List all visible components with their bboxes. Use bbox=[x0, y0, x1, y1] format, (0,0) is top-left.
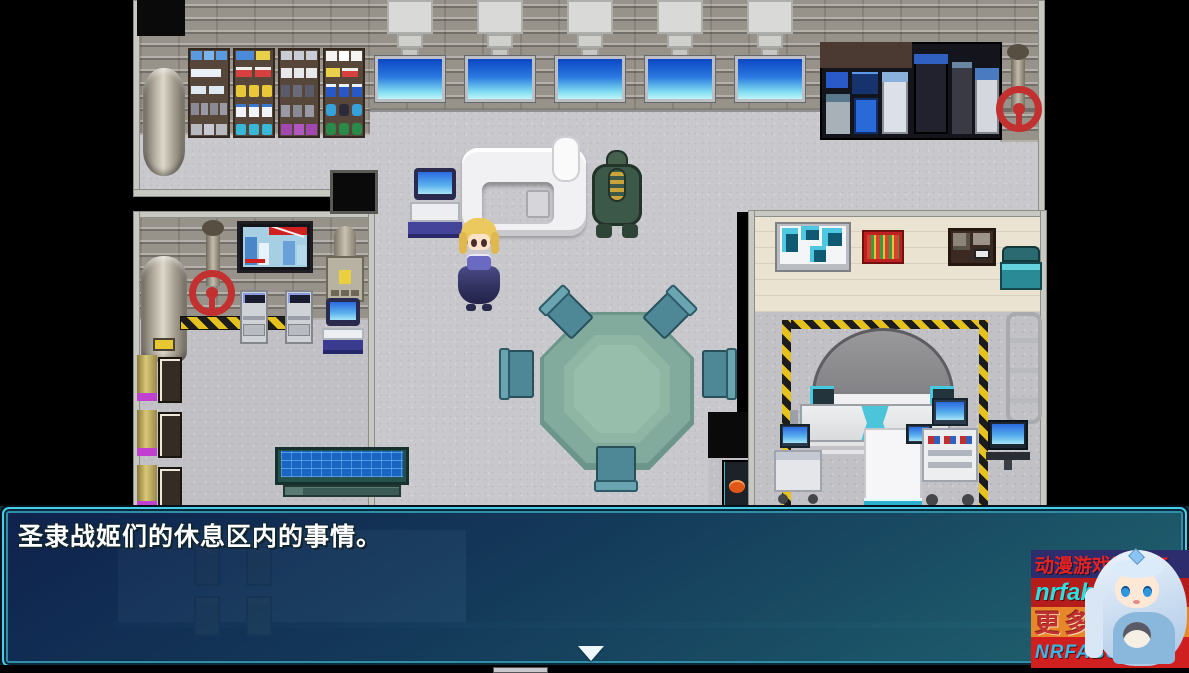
picture-label bbox=[974, 249, 990, 259]
xray-film bbox=[810, 246, 826, 262]
shelf-item bbox=[339, 123, 349, 135]
machine-panel bbox=[158, 357, 182, 403]
counter-panel bbox=[552, 136, 580, 182]
wall-picture bbox=[948, 228, 996, 266]
shelf-item bbox=[255, 67, 271, 77]
shelf-item bbox=[293, 85, 302, 97]
shelf-row bbox=[281, 51, 317, 60]
machine-cylinder bbox=[137, 410, 157, 456]
cart-base bbox=[408, 222, 462, 238]
desk-monitor bbox=[326, 298, 360, 326]
shelf-item bbox=[294, 68, 305, 78]
cart-monitor bbox=[932, 398, 968, 426]
shelf-item bbox=[339, 84, 349, 97]
monitor-stand bbox=[986, 420, 1030, 470]
shelf-item bbox=[281, 105, 290, 117]
machine-button bbox=[351, 290, 359, 296]
wall-vent bbox=[747, 0, 793, 34]
shelf-row bbox=[191, 86, 227, 94]
shelf-item bbox=[256, 51, 270, 60]
shelf-item bbox=[209, 86, 224, 94]
holo-frame bbox=[275, 447, 409, 485]
shelf-item bbox=[216, 124, 227, 135]
watermark-mascot bbox=[1083, 548, 1189, 668]
shelf-item bbox=[262, 104, 272, 117]
wall-monitor bbox=[735, 56, 805, 102]
valve-wheel bbox=[189, 270, 235, 316]
robot-foot bbox=[596, 224, 612, 238]
terminal-screen bbox=[288, 293, 310, 303]
machinery-cabinet bbox=[975, 68, 999, 134]
shelf-item bbox=[249, 85, 259, 97]
cart-shelf bbox=[928, 462, 972, 468]
machine-button bbox=[341, 290, 349, 296]
shelf-item bbox=[352, 104, 362, 116]
stand-shelf bbox=[986, 452, 1030, 460]
shelf-row bbox=[281, 105, 317, 117]
doorway-machineroom bbox=[330, 170, 378, 214]
shelf-row bbox=[281, 124, 317, 135]
red-poster bbox=[862, 230, 904, 264]
shelf-item bbox=[249, 124, 259, 135]
shelf-item bbox=[306, 124, 317, 135]
shelf-row bbox=[191, 69, 227, 77]
terminal-slot bbox=[288, 316, 310, 320]
shelf-item bbox=[249, 104, 259, 117]
machinery-lockers bbox=[820, 42, 1002, 140]
xray-viewer bbox=[775, 222, 851, 272]
wall-machine bbox=[137, 355, 183, 405]
machinery-screen bbox=[826, 72, 848, 88]
machine-label bbox=[339, 270, 351, 284]
medical-cart-right bbox=[916, 398, 982, 510]
green-robot bbox=[592, 150, 642, 240]
machinery-screen bbox=[854, 98, 878, 134]
cart-monitor-screen bbox=[783, 427, 807, 443]
robot-core bbox=[610, 170, 624, 200]
machinery-locker bbox=[914, 54, 948, 134]
cart-body bbox=[774, 450, 822, 492]
robot-foot bbox=[622, 224, 638, 238]
shelf-item bbox=[306, 51, 317, 60]
chair-back bbox=[499, 348, 510, 400]
valve-wheel bbox=[996, 86, 1042, 132]
store-shelf-2 bbox=[233, 48, 275, 138]
chair-back bbox=[726, 348, 737, 400]
terminal-panel bbox=[243, 324, 265, 336]
stretcher-bar bbox=[1010, 368, 1038, 373]
xray-board bbox=[780, 226, 846, 264]
boiler-window bbox=[153, 338, 175, 351]
shelf-item bbox=[294, 51, 305, 60]
player-hair-lock bbox=[491, 232, 499, 254]
holo-base bbox=[283, 485, 401, 497]
teal-machine-top bbox=[1002, 246, 1040, 262]
shelf-item bbox=[326, 84, 336, 97]
shelf-row bbox=[281, 68, 317, 78]
shelf-item bbox=[293, 105, 302, 117]
desk-keyboard bbox=[322, 328, 364, 340]
shelf-item bbox=[339, 51, 350, 61]
shelf-item bbox=[306, 68, 317, 78]
shelf-item bbox=[210, 103, 218, 115]
shelf-row bbox=[236, 67, 272, 77]
cart-monitor bbox=[414, 168, 456, 200]
shelf-item bbox=[352, 123, 362, 135]
store-shelf-4 bbox=[323, 48, 365, 138]
machine-button bbox=[331, 290, 339, 296]
shelf-item bbox=[326, 104, 336, 116]
scanner-monitor bbox=[810, 386, 834, 406]
tv-building bbox=[297, 245, 306, 265]
poster-pattern bbox=[867, 235, 899, 259]
player-skirt bbox=[458, 266, 500, 304]
cart-modules bbox=[928, 436, 972, 444]
cart-monitor-screen bbox=[418, 172, 452, 194]
stand-monitor-screen bbox=[992, 424, 1024, 444]
holo-table bbox=[275, 447, 409, 497]
dialogue-text: 圣隶战姬们的休息区内的事情。 bbox=[18, 517, 382, 553]
machinery-screen bbox=[852, 72, 878, 94]
table-center bbox=[574, 345, 660, 433]
stretcher-bar bbox=[1010, 398, 1038, 403]
dialogue-box[interactable]: 圣隶战姬们的休息区内的事情。 bbox=[2, 507, 1187, 667]
machine-cylinder bbox=[137, 465, 157, 509]
shelf-row bbox=[281, 85, 317, 97]
shelf-item bbox=[352, 84, 362, 97]
player-eye bbox=[481, 239, 487, 247]
shelf-item bbox=[191, 103, 199, 115]
valve-pipe-cap bbox=[1007, 44, 1029, 60]
wall-vent bbox=[567, 0, 613, 34]
terminal-machine bbox=[285, 290, 313, 344]
shelf-row bbox=[191, 124, 227, 135]
shelf-item bbox=[326, 51, 337, 61]
tv-picture bbox=[243, 227, 307, 267]
store-shelf-3 bbox=[278, 48, 320, 138]
machinery-panel bbox=[820, 42, 912, 68]
wall-monitor bbox=[555, 56, 625, 102]
shelf-item bbox=[342, 68, 358, 77]
wall-monitor bbox=[375, 56, 445, 102]
cart-keyboard bbox=[410, 202, 460, 222]
cart-monitor bbox=[780, 424, 810, 448]
shelf-item bbox=[305, 85, 314, 97]
shelf-row bbox=[236, 85, 272, 97]
mascot-plush bbox=[1123, 622, 1151, 648]
stand-monitor bbox=[988, 420, 1028, 450]
wall-vent bbox=[657, 0, 703, 34]
counter-box bbox=[526, 190, 550, 218]
machine-cylinder bbox=[137, 355, 157, 401]
shelf-item bbox=[326, 68, 340, 77]
xray-film bbox=[801, 226, 819, 240]
shelf-item bbox=[191, 124, 202, 135]
terminal-panel bbox=[288, 324, 310, 336]
stretcher-bar bbox=[1010, 338, 1038, 343]
shelf-row bbox=[326, 51, 362, 61]
shelf-item bbox=[262, 85, 272, 97]
shelf-row bbox=[326, 84, 362, 97]
terminal-slot bbox=[243, 316, 265, 320]
shelf-item bbox=[236, 51, 254, 60]
shelf-item bbox=[191, 86, 206, 94]
bottom-bar bbox=[0, 665, 1189, 673]
metal-tank bbox=[143, 68, 185, 176]
player-character bbox=[456, 216, 502, 312]
mascot-eye bbox=[1143, 586, 1152, 597]
teal-machine bbox=[1000, 246, 1042, 292]
medical-cart-left bbox=[772, 410, 826, 510]
shelf-item bbox=[326, 123, 336, 135]
xray-film bbox=[822, 228, 842, 246]
machine-panel bbox=[158, 467, 182, 511]
shelf-row bbox=[191, 103, 227, 115]
room-border bbox=[748, 210, 755, 512]
shelf-item bbox=[294, 124, 305, 135]
machinery-cabinet bbox=[826, 94, 850, 134]
chair-east bbox=[702, 350, 728, 398]
shelf-item bbox=[191, 69, 221, 77]
cart-wheel bbox=[962, 494, 974, 506]
machinery-cabinet bbox=[882, 72, 908, 134]
shelf-item bbox=[281, 51, 292, 60]
shelf-item bbox=[281, 85, 290, 97]
tv-ticker bbox=[245, 259, 265, 263]
continue-indicator-icon[interactable] bbox=[578, 646, 604, 661]
shelf-item bbox=[305, 105, 314, 117]
cart-shelf bbox=[928, 450, 972, 456]
shelf-item bbox=[204, 124, 215, 135]
player-foot bbox=[482, 304, 492, 311]
shelf-item bbox=[281, 124, 292, 135]
hazard-stripe bbox=[180, 316, 298, 330]
cart-wheel bbox=[808, 494, 818, 504]
mascot-eye bbox=[1121, 586, 1130, 597]
player-eye bbox=[471, 239, 477, 247]
store-shelf-1 bbox=[188, 48, 230, 138]
shelf-item bbox=[236, 124, 246, 135]
chair-west bbox=[508, 350, 534, 398]
desk-base bbox=[323, 340, 363, 354]
shelf-item bbox=[201, 103, 209, 115]
shelf-row bbox=[236, 51, 272, 60]
desk-monitor-screen bbox=[330, 302, 356, 320]
shelf-item bbox=[339, 104, 349, 116]
doorway-top-left bbox=[137, 0, 185, 36]
terminal-machine bbox=[240, 290, 268, 344]
wall-vent bbox=[477, 0, 523, 34]
machine-dome bbox=[334, 226, 356, 258]
shelf-item bbox=[236, 67, 252, 77]
shelf-row bbox=[236, 124, 272, 135]
cart-wheel bbox=[778, 494, 788, 504]
holo-screen bbox=[281, 451, 403, 477]
teal-machine-body bbox=[1000, 262, 1042, 290]
cart-wheel bbox=[926, 494, 938, 506]
bottom-map-fragment bbox=[493, 667, 548, 673]
mascot-mouth bbox=[1133, 600, 1140, 604]
shelf-row bbox=[326, 123, 362, 135]
watermark: 动漫游戏资源库 nrfabu.com 更多资源 NRFABU.COM bbox=[1031, 550, 1189, 668]
desk-computer bbox=[322, 298, 364, 356]
picture-pane bbox=[953, 233, 970, 250]
shelf-row bbox=[191, 51, 227, 60]
boiler-tank bbox=[141, 256, 187, 362]
terminal-screen bbox=[243, 293, 265, 303]
wall-monitor bbox=[465, 56, 535, 102]
tan-machine bbox=[326, 226, 364, 302]
wall-machine bbox=[137, 465, 183, 512]
player-foot bbox=[466, 304, 476, 311]
tv-building bbox=[283, 241, 295, 265]
machinery-locker bbox=[952, 62, 972, 134]
machine-panel bbox=[158, 412, 182, 458]
shelf-item bbox=[216, 51, 227, 60]
chair-back bbox=[594, 480, 638, 492]
cart-body bbox=[922, 428, 978, 482]
shelf-item bbox=[204, 51, 215, 60]
wall-vent bbox=[387, 0, 433, 34]
picture-pane bbox=[973, 233, 990, 245]
player-hair-lock bbox=[459, 232, 467, 254]
shelf-row bbox=[326, 68, 362, 77]
player-torso bbox=[467, 254, 491, 270]
console-light bbox=[729, 480, 745, 493]
wall-machine bbox=[137, 410, 183, 460]
shelf-item bbox=[236, 85, 246, 97]
room-border bbox=[748, 210, 1047, 217]
xray-film bbox=[782, 228, 798, 252]
shelf-item bbox=[191, 51, 202, 60]
shelf-item bbox=[220, 103, 228, 115]
stretcher bbox=[1006, 312, 1042, 424]
stand-pole bbox=[1004, 460, 1012, 470]
chair-south bbox=[596, 446, 636, 484]
shelf-item bbox=[351, 51, 362, 61]
shelf-row bbox=[236, 104, 272, 117]
shelf-item bbox=[281, 68, 292, 78]
shelf-item bbox=[262, 124, 272, 135]
wall-monitor bbox=[645, 56, 715, 102]
game-screen: 圣隶战姬们的休息区内的事情。 动漫游戏资源库 nrfabu.com 更多资源 N… bbox=[0, 0, 1189, 673]
tv-screen bbox=[240, 224, 310, 270]
valve-pipe-cap bbox=[202, 220, 224, 236]
shelf-row bbox=[326, 104, 362, 116]
cart-monitor-screen bbox=[936, 402, 964, 420]
shelf-item bbox=[236, 104, 246, 117]
mascot-hair-strand bbox=[1085, 588, 1103, 658]
